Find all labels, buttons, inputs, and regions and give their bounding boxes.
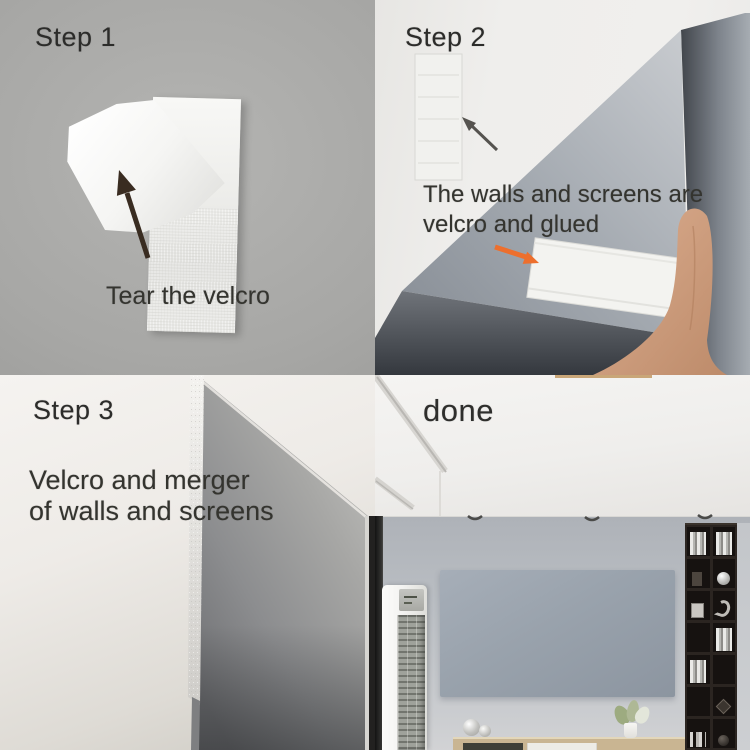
- step2-label: Step 2: [405, 22, 486, 53]
- cabinet-drawer-white: [527, 743, 597, 750]
- shelf-cell: [713, 655, 736, 684]
- books: [690, 532, 706, 555]
- instruction-collage: Step 1 Tear the velcro: [0, 0, 750, 750]
- shelf-cell: [687, 559, 710, 588]
- decor-sphere: [717, 572, 730, 585]
- shelf-cell: [713, 687, 736, 716]
- bookshelf: [685, 523, 737, 750]
- books: [716, 532, 732, 555]
- shelf-cell: [713, 559, 736, 588]
- shelf-cell: [687, 719, 710, 748]
- step3-caption-line1: Velcro and merger: [29, 465, 250, 496]
- panel-step3: Step 3 Velcro and merger of walls and sc…: [0, 375, 375, 750]
- ac-display-digits: [404, 602, 412, 604]
- pointer-arrow-icon: [462, 117, 497, 150]
- downlight-icon: [468, 516, 482, 519]
- velcro-strip-sample: [415, 54, 462, 180]
- step2-caption-line2: velcro and glued: [423, 211, 599, 239]
- peel-direction-arrow-icon: [0, 0, 375, 375]
- panel-step1: Step 1 Tear the velcro: [0, 0, 375, 375]
- decor-bottles: [690, 732, 706, 747]
- panel-done: done: [375, 375, 750, 750]
- decor-object: [692, 572, 702, 586]
- panel-step2: Step 2 The walls and screens are velcro …: [375, 0, 750, 375]
- decor-silver-ball: [463, 719, 480, 736]
- shelf-cell: [687, 623, 710, 652]
- books: [690, 660, 706, 683]
- decor-silver-ball: [479, 725, 491, 737]
- shelf-cell: [687, 655, 710, 684]
- photo-edge-sliver: [365, 516, 375, 750]
- downlight-icon: [698, 515, 712, 518]
- photo-frame: [691, 603, 704, 618]
- step2-caption-line1: The walls and screens are: [423, 181, 703, 209]
- tv-cabinet: [453, 737, 685, 750]
- step1-caption: Tear the velcro: [106, 282, 270, 311]
- air-conditioner: [382, 585, 427, 750]
- wall-mounted-screen: [440, 570, 675, 697]
- cabinet-drawer-dark: [463, 743, 523, 750]
- shelf-cell: [687, 687, 710, 716]
- shelf-cell: [687, 591, 710, 620]
- done-label: done: [423, 393, 494, 429]
- decor-sculpture: [713, 598, 732, 618]
- mounted-screen: [198, 380, 368, 750]
- flower-vase: [624, 723, 637, 738]
- step3-caption-line2: of walls and screens: [29, 496, 274, 527]
- books: [716, 628, 732, 651]
- ac-vent-grille: [397, 615, 425, 750]
- shelf-cell: [713, 719, 736, 748]
- step1-label: Step 1: [35, 22, 116, 53]
- wall-right-sliver: [737, 523, 750, 750]
- decor-diamond: [715, 699, 731, 715]
- ac-display: [399, 589, 424, 611]
- step3-photo: [0, 375, 375, 750]
- ac-display-digits: [404, 596, 417, 598]
- downlight-icon: [585, 517, 599, 520]
- shelf-cell: [713, 591, 736, 620]
- shelf-cell: [713, 623, 736, 652]
- step3-label: Step 3: [33, 395, 114, 426]
- decor-ball: [718, 735, 729, 746]
